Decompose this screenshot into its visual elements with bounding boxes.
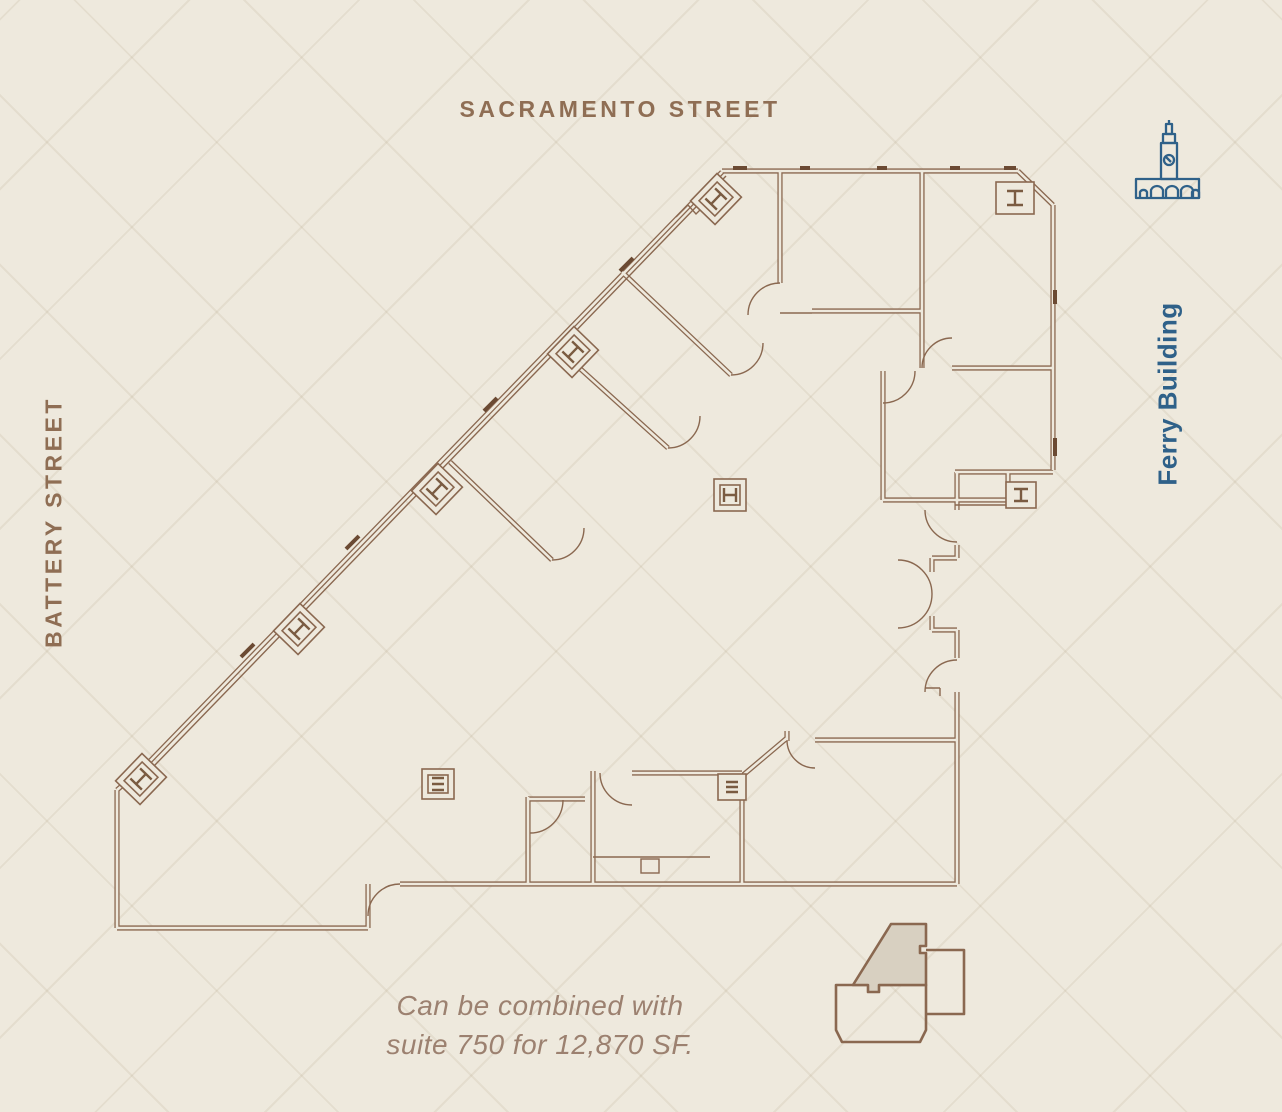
combination-note-line2: suite 750 for 12,870 SF.	[386, 1025, 693, 1064]
combination-note-line1: Can be combined with	[386, 986, 693, 1025]
street-label-battery: BATTERY STREET	[41, 396, 68, 648]
column-markers	[116, 174, 1036, 805]
key-plan	[836, 924, 964, 1042]
combination-note: Can be combined with suite 750 for 12,87…	[386, 986, 693, 1064]
door-arcs	[368, 283, 957, 916]
window-wall-details	[128, 176, 1032, 873]
floor-plan	[0, 0, 1282, 1112]
suite-walls	[117, 170, 1053, 928]
street-label-sacramento: SACRAMENTO STREET	[459, 96, 780, 123]
mullion-marks	[241, 168, 1055, 657]
ferry-building-label: Ferry Building	[1153, 302, 1184, 485]
ferry-building-icon	[1136, 120, 1199, 198]
key-plan-suite-highlight	[853, 924, 926, 992]
